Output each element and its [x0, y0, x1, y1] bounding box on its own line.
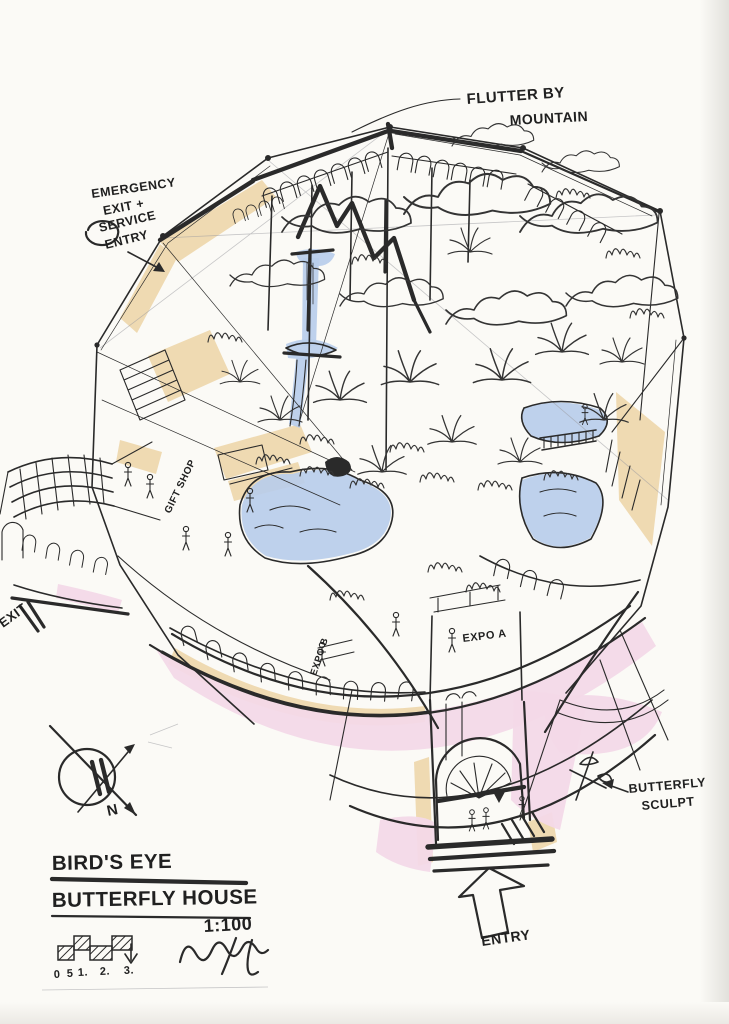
- scale-tick-4: 3.: [124, 964, 135, 977]
- butterfly-house-sketch: FLUTTER BY MOUNTAIN EMERGENCY EXIT + SER…: [0, 0, 729, 1024]
- title-line2: BUTTERFLY HOUSE: [52, 885, 258, 912]
- scale-tick-3: 2.: [100, 965, 111, 978]
- scale-tick-0: 0: [54, 969, 61, 981]
- drawing-scale-label: 1:100: [203, 913, 253, 936]
- scale-tick-2: 1.: [78, 966, 89, 979]
- scale-tick-1: 5: [67, 968, 74, 980]
- sketch-page: FLUTTER BY MOUNTAIN EMERGENCY EXIT + SER…: [0, 0, 729, 1024]
- title-line1: BIRD'S EYE: [52, 850, 173, 875]
